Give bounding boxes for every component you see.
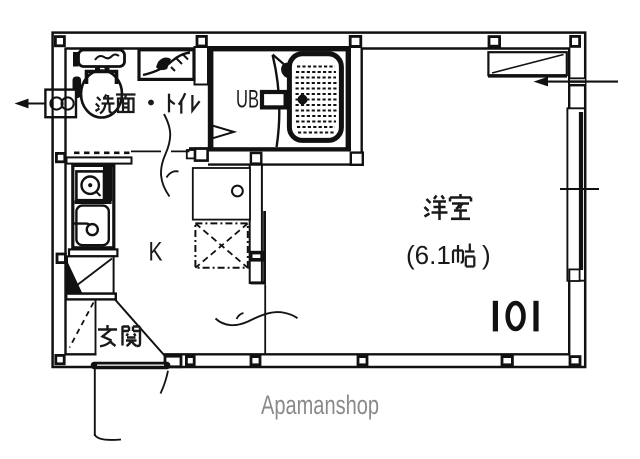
svg-text:Apamanshop: Apamanshop [261,390,379,420]
svg-text:K: K [149,237,163,267]
svg-text:): ) [482,240,491,270]
svg-text:(6.1: (6.1 [406,240,451,270]
svg-text:UB: UB [236,86,259,114]
